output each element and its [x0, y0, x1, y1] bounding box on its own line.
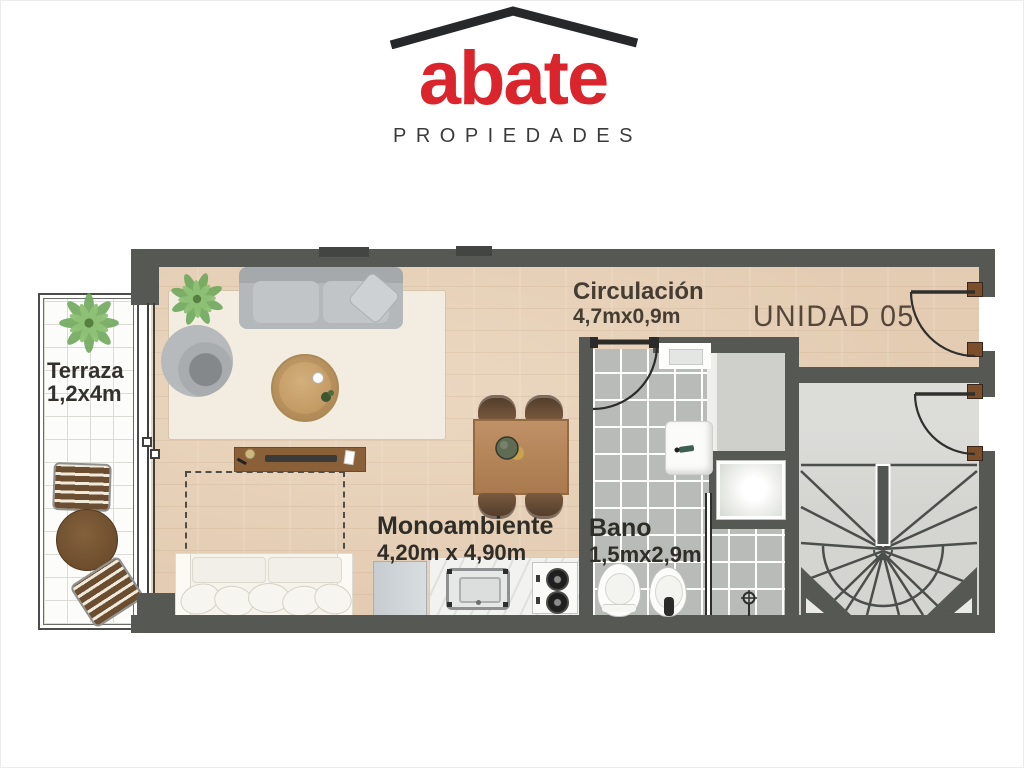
toilet-seat — [605, 573, 635, 605]
sink-bolt — [447, 569, 452, 574]
wall-shower-bottom — [711, 519, 787, 529]
kitchen-counter — [429, 557, 581, 617]
duct-area — [715, 353, 785, 451]
room-name: Bano — [589, 515, 702, 541]
wall-right — [979, 451, 995, 633]
bidet — [649, 567, 687, 617]
label-monoambiente: Monoambiente 4,20m x 4,90m — [377, 513, 553, 564]
room-dims: 4,7mx0,9m — [573, 306, 704, 328]
kitchen-sink — [446, 568, 510, 610]
cooktop — [532, 562, 578, 614]
shower-tray — [717, 461, 785, 519]
tv-screen — [265, 455, 337, 462]
door-frame-post — [967, 446, 983, 461]
wall-left-stub — [131, 249, 159, 305]
label-terraza: Terraza 1,2x4m — [47, 359, 124, 405]
sofa-cushion — [253, 281, 319, 323]
room-name: Circulación — [573, 279, 704, 304]
door-frame-post — [967, 282, 983, 297]
door-frame-post — [967, 342, 983, 357]
floorplan-page: abate PROPIEDADES — [0, 0, 1024, 768]
dashed-zone — [185, 471, 345, 559]
tv-console — [234, 447, 366, 472]
room-dims: 1,2x4m — [47, 382, 124, 405]
wall-circulation-divider — [785, 367, 979, 383]
room-dims: 4,20m x 4,90m — [377, 541, 553, 564]
toilet — [597, 563, 641, 617]
room-name: Terraza — [47, 359, 124, 382]
wall-bottom — [131, 615, 995, 633]
armchair — [161, 325, 233, 397]
wall-bathroom-left — [579, 337, 593, 617]
label-circulacion: Circulación 4,7mx0,9m — [573, 279, 704, 328]
sliding-door-handle — [150, 449, 160, 459]
label-bano: Bano 1,5mx2,9m — [589, 515, 702, 566]
wall-left-corner — [137, 593, 175, 633]
toilet-lid-line — [602, 604, 636, 612]
sink-basin — [459, 577, 501, 603]
burner — [546, 591, 569, 614]
brand-logo: abate PROPIEDADES — [1, 1, 1024, 171]
sliding-door-handle — [142, 437, 152, 447]
room-dims: 1,5mx2,9m — [589, 543, 702, 566]
terrace-chair — [52, 462, 112, 512]
stair-landing-floor — [799, 383, 979, 615]
niche-inner — [669, 349, 703, 365]
wall-top-notch — [456, 246, 492, 256]
wall-top-notch — [319, 247, 369, 257]
glass-partition — [705, 493, 712, 615]
dining-chair — [525, 395, 563, 421]
unit-label: UNIDAD 05 — [753, 300, 915, 333]
bed — [175, 553, 353, 617]
vanity-sink — [665, 421, 713, 475]
sliding-door-track — [147, 303, 149, 593]
sofa — [239, 267, 403, 329]
bed-cushion — [268, 557, 342, 583]
fridge — [373, 561, 427, 617]
dining-chair — [478, 395, 516, 421]
door-frame-post — [967, 384, 983, 399]
wall-top — [131, 249, 995, 267]
coffee-table — [271, 354, 339, 422]
brand-tagline: PROPIEDADES — [1, 125, 1024, 148]
sink-drain — [476, 600, 481, 605]
dining-table — [473, 419, 569, 495]
burner — [546, 568, 569, 591]
label-unidad: UNIDAD 05 — [753, 301, 915, 333]
room-name: Monoambiente — [377, 513, 553, 539]
cooktop-knob — [536, 575, 540, 582]
bed-cushion — [192, 557, 266, 583]
brand-name: abate — [1, 41, 1024, 117]
bathroom-niche — [659, 343, 711, 369]
sliding-door-track — [153, 303, 155, 593]
bidet-tap — [664, 597, 674, 616]
terrace — [38, 293, 139, 630]
